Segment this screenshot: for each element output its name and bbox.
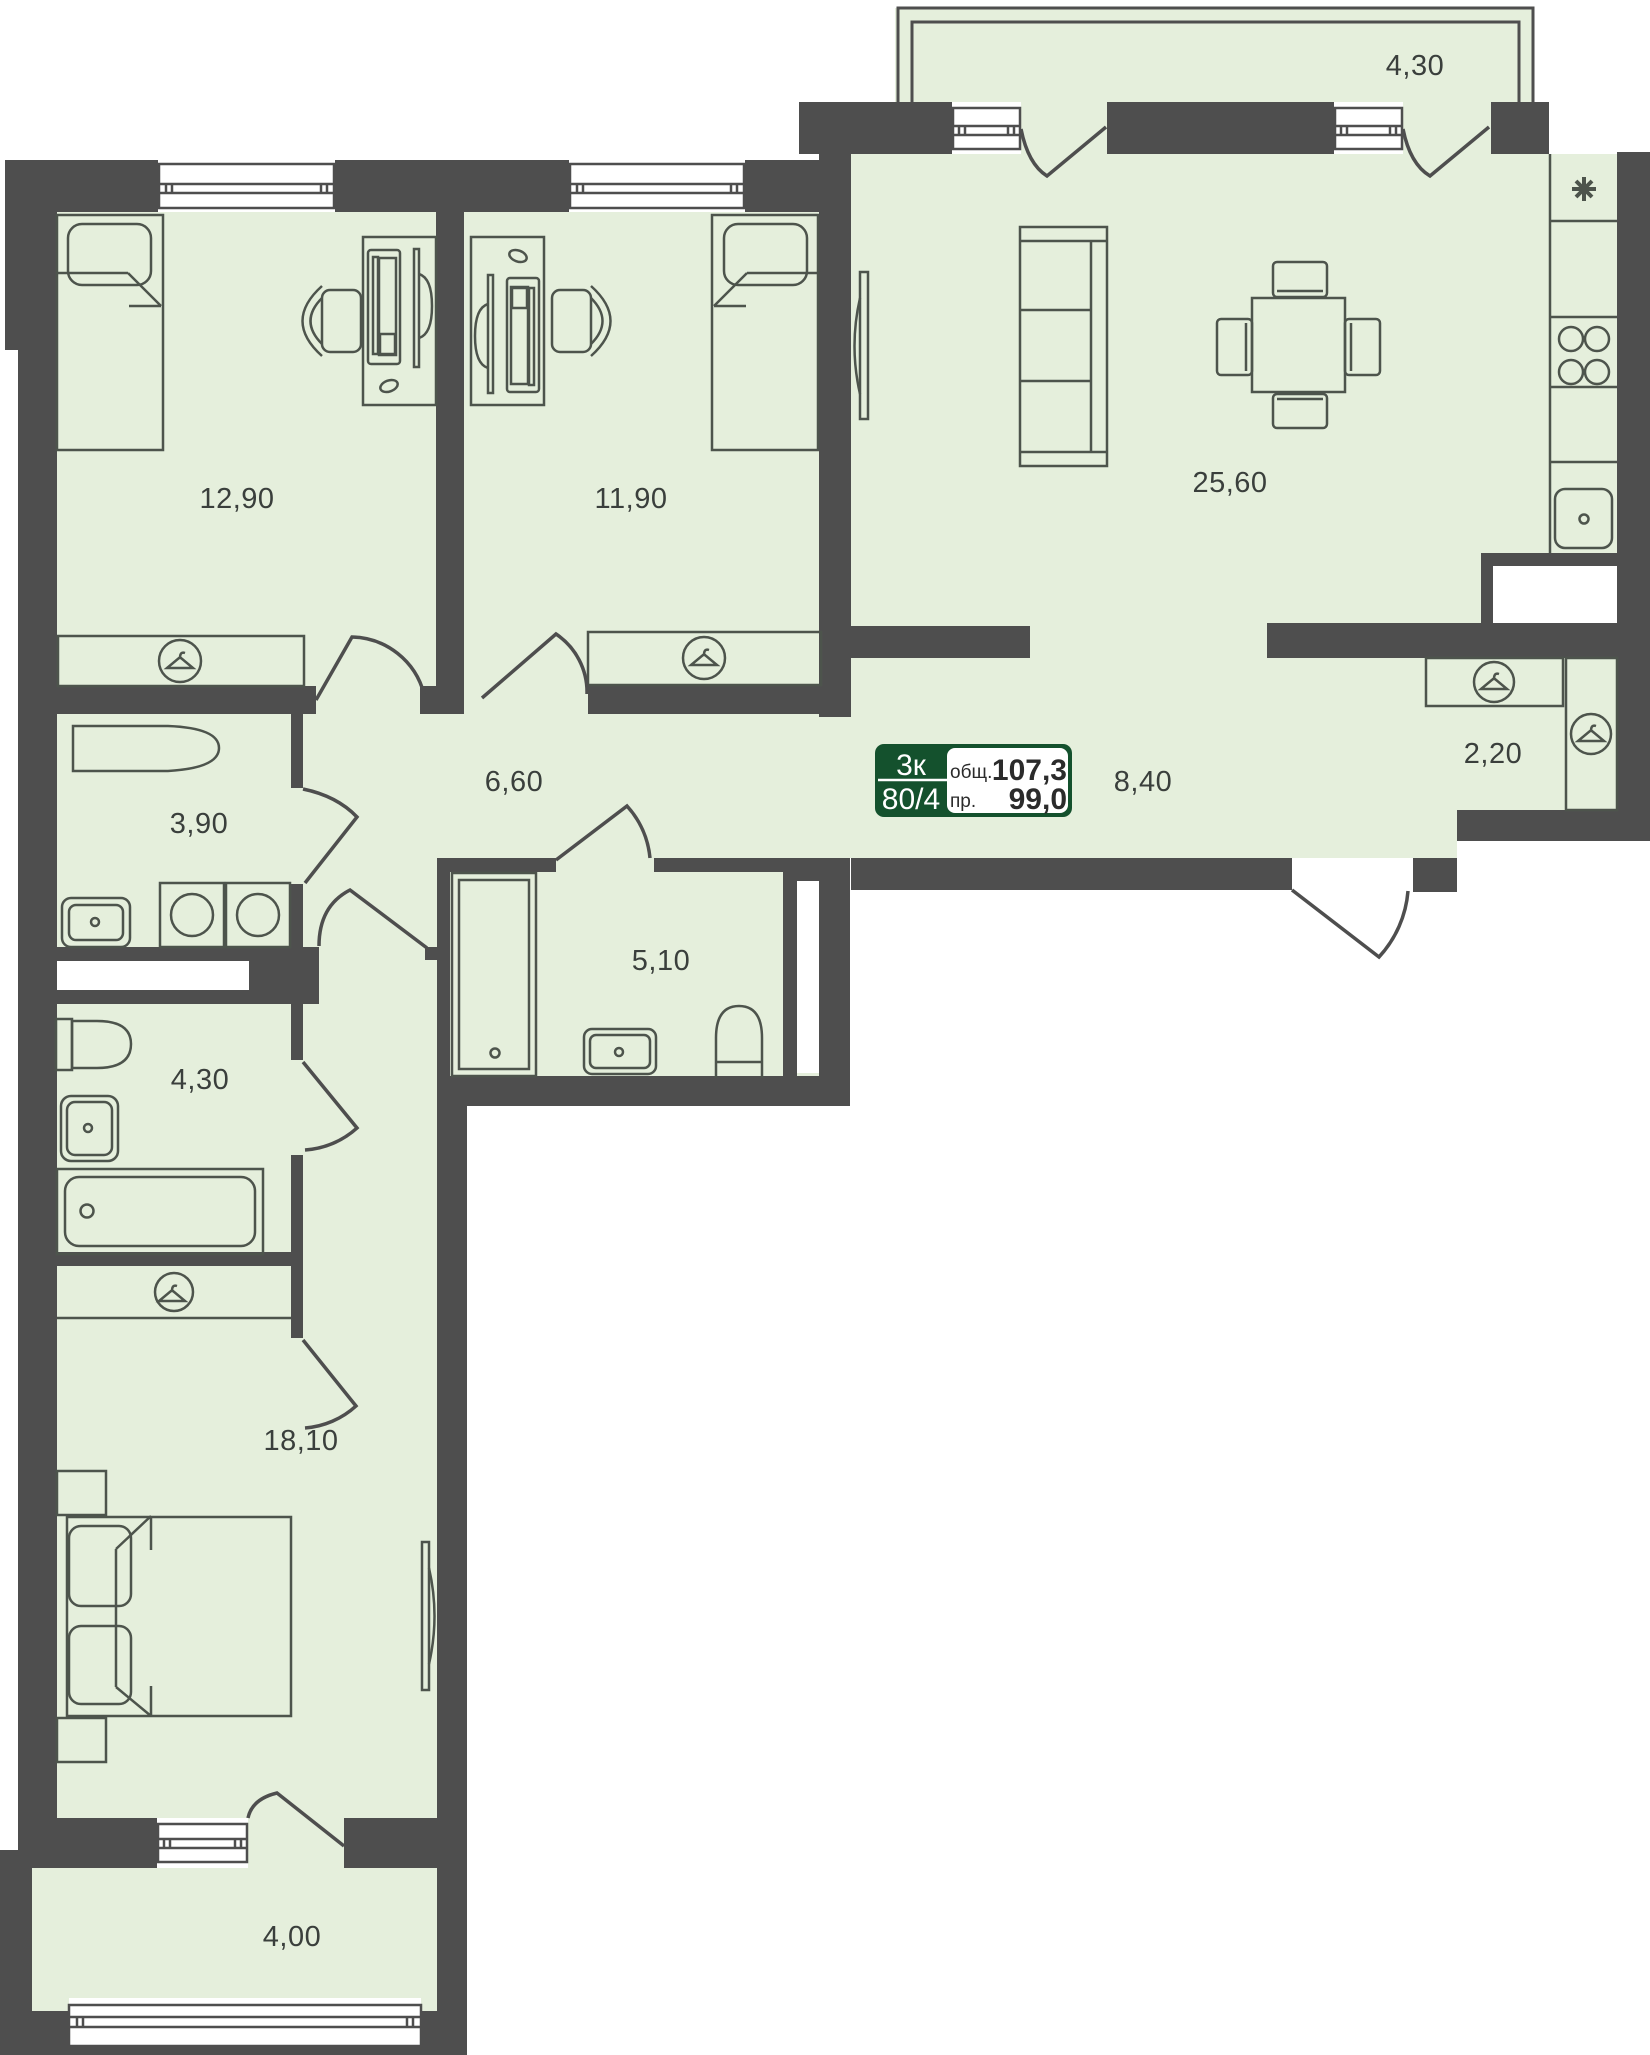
svg-text:6,60: 6,60 xyxy=(485,766,543,798)
svg-text:3к: 3к xyxy=(896,749,927,782)
svg-text:3,90: 3,90 xyxy=(170,808,228,840)
svg-text:99,0: 99,0 xyxy=(1009,783,1067,816)
svg-text:общ.: общ. xyxy=(950,762,992,783)
svg-text:4,30: 4,30 xyxy=(1386,50,1444,82)
svg-text:4,30: 4,30 xyxy=(171,1064,229,1096)
svg-text:8,40: 8,40 xyxy=(1114,766,1172,798)
svg-text:18,10: 18,10 xyxy=(263,1425,338,1457)
svg-text:80/4: 80/4 xyxy=(882,783,940,816)
svg-text:пр.: пр. xyxy=(950,791,976,812)
svg-text:11,90: 11,90 xyxy=(595,483,668,515)
svg-text:12,90: 12,90 xyxy=(199,483,274,515)
svg-text:4,00: 4,00 xyxy=(263,1921,321,1953)
svg-text:5,10: 5,10 xyxy=(632,945,690,977)
svg-text:2,20: 2,20 xyxy=(1464,738,1522,770)
svg-text:25,60: 25,60 xyxy=(1192,467,1267,499)
